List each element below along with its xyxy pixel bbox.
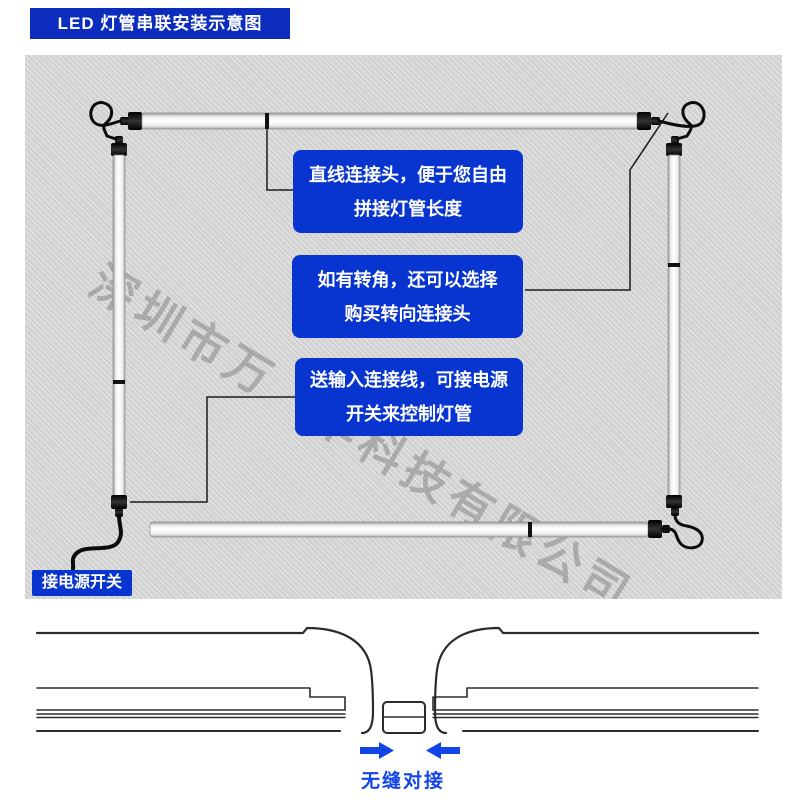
power-switch-label: 接电源开关 xyxy=(32,570,132,596)
callout-text-line: 拼接灯管长度 xyxy=(354,192,462,226)
led-tube-left xyxy=(111,136,127,517)
tube-end-cap xyxy=(111,495,127,509)
callout-corner-connector: 如有转角，还可以选择 购买转向连接头 xyxy=(292,255,523,338)
straight-connector-seam xyxy=(528,522,532,537)
callout-text-line: 如有转角，还可以选择 xyxy=(318,263,498,297)
arrow-left-icon xyxy=(426,742,460,759)
seamless-joint-caption: 无缝对接 xyxy=(340,766,466,793)
callout-straight-connector: 直线连接头，便于您自由 拼接灯管长度 xyxy=(293,150,523,233)
tube-end-cap xyxy=(666,143,682,156)
straight-connector-seam xyxy=(113,380,125,384)
tube-body xyxy=(113,155,125,496)
joint-arrows xyxy=(360,742,460,759)
tube-end-cap xyxy=(637,112,651,130)
hanging-loop-icon xyxy=(91,103,120,139)
page-title: LED 灯管串联安装示意图 xyxy=(30,8,290,39)
callout-text-line: 开关来控制灯管 xyxy=(346,397,472,431)
tube-body xyxy=(150,522,648,537)
straight-connector-seam xyxy=(265,113,269,129)
callout-text-line: 送输入连接线，可接电源 xyxy=(310,363,508,397)
callout-text-line: 购买转向连接头 xyxy=(345,297,471,331)
led-tube-top xyxy=(120,112,660,130)
tube-body xyxy=(668,155,680,496)
diagram-panel: 深圳市万 华科技有限公司 xyxy=(25,55,782,599)
joint-right-tube-profile xyxy=(433,628,758,733)
leader-line-input-cable xyxy=(130,397,295,502)
leader-line-straight-connector xyxy=(267,129,293,190)
leader-line-corner-connector xyxy=(525,113,668,290)
arrow-right-icon xyxy=(360,742,394,759)
hanging-loop-icon xyxy=(659,103,704,139)
tube-end-cap xyxy=(648,520,662,538)
straight-connector-seam xyxy=(668,263,680,267)
joint-left-tube-profile xyxy=(37,628,373,733)
callout-text-line: 直线连接头，便于您自由 xyxy=(309,158,507,192)
led-tube-bottom xyxy=(150,520,670,538)
led-tube-right xyxy=(666,136,682,516)
joint-coupling-piece xyxy=(383,702,425,733)
callout-input-cable: 送输入连接线，可接电源 开关来控制灯管 xyxy=(295,358,523,436)
tube-end-cap xyxy=(666,495,682,508)
tube-end-cap xyxy=(128,112,142,130)
tube-body xyxy=(142,113,637,129)
tube-end-cap xyxy=(111,143,127,156)
power-input-cable xyxy=(73,515,121,569)
